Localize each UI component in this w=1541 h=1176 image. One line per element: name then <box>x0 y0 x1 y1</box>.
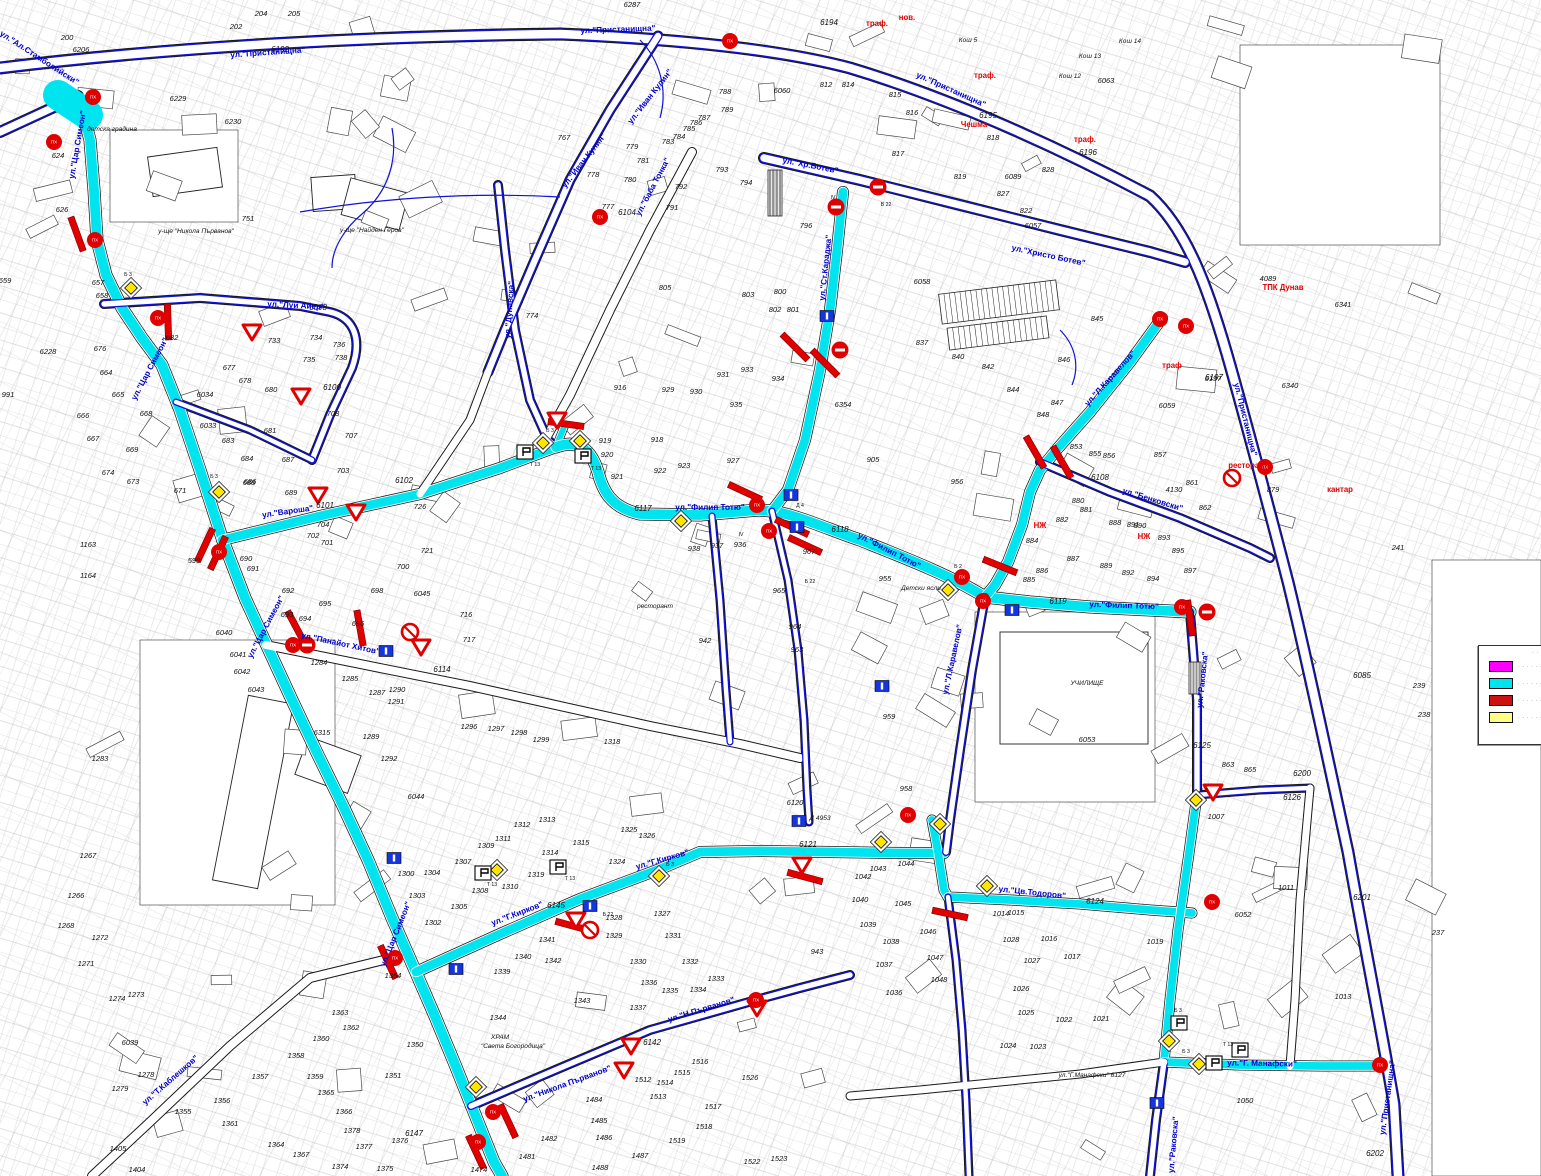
hydrant-icon: ПХ <box>85 89 101 105</box>
hydrant-code: ПХ <box>766 529 772 534</box>
sign-small-label: Б 22 <box>603 912 614 918</box>
parcel-number-label: 1028 <box>1003 935 1021 944</box>
parcel-number-label: 659 <box>0 276 12 285</box>
info-sign-icon <box>583 901 597 912</box>
parcel-number-label: 707 <box>345 431 358 440</box>
parcel-number-label: 884 <box>1026 536 1039 545</box>
parcel-number-label: 1333 <box>708 974 726 983</box>
open-area <box>1240 45 1440 245</box>
parcel-number-label: 815 <box>889 90 902 99</box>
building <box>327 107 353 135</box>
poi-label-black: Кош 5 <box>959 37 978 44</box>
poi-label-black: "Света Богородица" <box>481 1042 546 1050</box>
parcel-number-label: 726 <box>414 502 427 511</box>
hydrant-code: ПХ <box>216 550 222 555</box>
poi-label-black: ресторант <box>636 603 674 610</box>
poi-label-black: у-ще "Никола Първанов" <box>157 228 234 235</box>
parcel-number-label: 1267 <box>80 851 98 860</box>
parcel-number-label: 1356 <box>214 1096 232 1105</box>
hydrant-icon: ПХ <box>761 523 777 539</box>
parcel-number-label: 721 <box>421 546 434 555</box>
parcel-number-label: 1329 <box>606 931 624 940</box>
sign-small-label: Б 3 <box>124 272 132 278</box>
parcel-number-label: 816 <box>906 108 919 117</box>
parcel-number-label: 812 <box>820 80 833 89</box>
hydrant-icon: ПХ <box>722 33 738 49</box>
street-code-label: 6124 <box>1086 897 1104 906</box>
hydrant-code: ПХ <box>290 643 296 648</box>
parcel-number-label: 927 <box>727 456 740 465</box>
poi-label-red: кантар <box>1327 485 1353 494</box>
parcel-number-label: 865 <box>1244 765 1257 774</box>
parcel-number-label: 1026 <box>1013 984 1031 993</box>
parcel-number-label: 1357 <box>252 1072 270 1081</box>
poi-label-black: Кош 12 <box>1059 73 1082 80</box>
parcel-number-label: 1040 <box>852 895 870 904</box>
hydrant-code: ПХ <box>392 956 398 961</box>
parcel-number-label: 667 <box>87 434 100 443</box>
parcel-number-label: 1366 <box>336 1107 354 1116</box>
info-sign-icon <box>1005 605 1019 616</box>
building <box>211 975 232 985</box>
street-code-label: 6102 <box>395 476 413 485</box>
parcel-number-label: 669 <box>126 445 139 454</box>
parcel-number-label: 658 <box>96 291 109 300</box>
parcel-number-label: 1355 <box>175 1107 193 1116</box>
parcel-number-label: 1017 <box>1064 952 1082 961</box>
parcel-number-label: 1363 <box>332 1008 350 1017</box>
hydrant-code: ПХ <box>754 503 760 508</box>
parcel-number-label: 6340 <box>1282 381 1300 390</box>
parcel-number-label: 1351 <box>385 1071 402 1080</box>
sign-small-label: Б 3 <box>1174 1008 1182 1014</box>
street-code-label: 6196 <box>1079 148 1097 157</box>
parcel-number-label: 1519 <box>669 1136 687 1145</box>
parcel-number-label: 842 <box>982 362 995 371</box>
legend-label: · · · · · · · <box>1518 715 1541 720</box>
parcel-number-label: 1050 <box>1237 1096 1255 1105</box>
info-glyph <box>1156 1100 1158 1107</box>
parcel-number-label: 893 <box>1158 533 1171 542</box>
parcel-number-label: 690 <box>240 554 253 563</box>
hydrant-icon: ПХ <box>1178 318 1194 334</box>
parcel-number-label: 693 <box>281 610 294 619</box>
parcel-number-label: 892 <box>1122 568 1135 577</box>
parcel-number-label: 751 <box>242 214 255 223</box>
parcel-number-label: 931 <box>717 370 730 379</box>
street-code-label: 6142 <box>643 1038 661 1047</box>
parcel-number-label: 1319 <box>528 870 546 879</box>
sign-small-label: Т 13 <box>487 882 497 888</box>
info-sign-icon <box>387 853 401 864</box>
parcel-number-label: 1022 <box>1056 1015 1074 1024</box>
poi-label-red: ресторант <box>1228 461 1268 470</box>
poi-label-red: НЖ <box>1138 532 1152 541</box>
hydrant-icon: ПХ <box>900 807 916 823</box>
parcel-number-label: 681 <box>264 426 277 435</box>
poi-label-black: ХРАМ <box>490 1034 510 1041</box>
parcel-number-label: 827 <box>997 189 1010 198</box>
parcel-number-label: 1404 <box>129 1165 146 1174</box>
parcel-number-label: 1334 <box>690 985 707 994</box>
sign-small-label: Б 2 <box>954 564 962 570</box>
parcel-number-label: 847 <box>1051 398 1064 407</box>
street-code-label: 6108 <box>1091 473 1109 482</box>
parcel-number-label: 1278 <box>138 1070 156 1079</box>
parcel-number-label: 1361 <box>222 1119 239 1128</box>
parcel-number-label: 687 <box>282 455 295 464</box>
info-sign-icon <box>790 522 804 533</box>
parcel-number-label: 6053 <box>1079 735 1097 744</box>
building <box>336 1068 362 1092</box>
parcel-number-label: 905 <box>867 455 880 464</box>
parcel-number-label: 696 <box>352 619 365 628</box>
parcel-number-label: 888 <box>1109 518 1122 527</box>
poi-label-red: ТПК Дунав <box>1262 283 1303 292</box>
parcel-number-label: 837 <box>916 338 929 347</box>
parcel-number-label: 1297 <box>488 724 506 733</box>
parcel-number-label: 886 <box>1036 566 1049 575</box>
hydrant-icon: ПХ <box>1152 311 1168 327</box>
parcel-number-label: 934 <box>772 374 785 383</box>
parcel-number-label: 916 <box>614 383 627 392</box>
parcel-number-label: 929 <box>662 385 675 394</box>
parcel-number-label: 817 <box>892 149 905 158</box>
parcel-number-label: 1013 <box>1335 992 1353 1001</box>
parcel-number-label: 1019 <box>1147 937 1165 946</box>
parcel-number-label: 6206 <box>73 45 91 54</box>
parcel-number-label: 1330 <box>630 957 648 966</box>
building <box>1000 632 1148 744</box>
street-code-label: 6147 <box>405 1129 423 1138</box>
parcel-number-label: 626 <box>56 205 69 214</box>
hydrant-code: ПХ <box>597 215 603 220</box>
map-legend: · · · · · · · · · · · · · · · · · · · · … <box>1478 645 1541 745</box>
poi-label-red: траф. <box>1074 135 1096 144</box>
parcel-number-label: 200 <box>60 33 74 42</box>
legend-item-red: · · · · · · · <box>1489 695 1541 706</box>
parcel-number-label: 1163 <box>80 540 97 549</box>
street-code-label: 6114 <box>433 665 451 674</box>
sign-small-label: Д 4 <box>796 503 804 509</box>
hydrant-code: ПХ <box>905 813 911 818</box>
parcel-number-label: 1377 <box>356 1142 374 1151</box>
map-canvas[interactable]: ПХПХПХПХПХПХПХПХПХПХПХПХПХПХПХПХПХПХПХПХ… <box>0 0 1541 1176</box>
parcel-number-label: 845 <box>1091 314 1104 323</box>
legend-label: · · · · · · · <box>1518 698 1541 703</box>
parcel-number-label: 666 <box>77 411 90 420</box>
poi-label-black: УЧИЛИЩЕ <box>1069 680 1104 687</box>
sign-small-label: Б 22 <box>805 579 816 585</box>
parcel-number-label: 677 <box>223 363 236 372</box>
parcel-number-label: 6229 <box>170 94 188 103</box>
parcel-number-label: 717 <box>463 635 476 644</box>
legend-chip-red <box>1489 695 1513 706</box>
parcel-number-label: 1314 <box>542 848 559 857</box>
parcel-number-label: 1292 <box>381 754 399 763</box>
parcel-number-label: 1364 <box>268 1140 285 1149</box>
parcel-number-label: 683 <box>222 436 235 445</box>
sign-small-label: IV <box>739 532 744 538</box>
parcel-number-label: 668 <box>140 409 153 418</box>
parcel-number-label: 881 <box>1080 505 1093 514</box>
info-sign-icon <box>792 816 806 827</box>
street-code-label: 6195 <box>979 111 997 120</box>
parcel-number-label: 692 <box>282 586 295 595</box>
parcel-number-label: 691 <box>247 564 260 573</box>
sign-small-label: Б 3 <box>666 862 674 868</box>
parcel-number-label: 777 <box>602 202 615 211</box>
parcel-number-label: 1164 <box>80 571 96 580</box>
parcel-number-label: 689 <box>285 488 298 497</box>
parcel-number-label: 716 <box>460 610 473 619</box>
parcel-number-label: 846 <box>1058 355 1071 364</box>
parcel-number-label: 1274 <box>109 994 126 1003</box>
building <box>561 717 598 741</box>
poi-label-black: ул."Г.Манафски" 6127 <box>1058 1072 1126 1079</box>
parcel-number-label: 920 <box>601 450 614 459</box>
hydrant-code: ПХ <box>727 39 733 44</box>
parcel-number-label: 800 <box>774 287 787 296</box>
hydrant-code: ПХ <box>1157 317 1163 322</box>
info-sign-icon <box>449 964 463 975</box>
sign-small-label: Б 3 <box>546 428 554 434</box>
parcel-number-label: 1307 <box>455 857 473 866</box>
street-name-label: ул."Г. Манафски" <box>1227 1058 1297 1068</box>
parcel-number-label: 1027 <box>1024 956 1042 965</box>
hydrant-code: ПХ <box>959 575 965 580</box>
parcel-number-label: 733 <box>268 336 281 345</box>
parcel-number-label: 959 <box>883 712 896 721</box>
hydrant-code: ПХ <box>490 1110 496 1115</box>
parcel-number-label: 1279 <box>112 1084 130 1093</box>
street-code-label: 6119 <box>1049 597 1067 606</box>
parcel-number-label: 1336 <box>641 978 659 987</box>
parcel-number-label: 202 <box>229 22 243 31</box>
parcel-number-label: 956 <box>951 477 964 486</box>
parcel-number-label: 704 <box>317 520 330 529</box>
parcel-number-label: 943 <box>811 947 824 956</box>
parcel-number-label: 1283 <box>92 754 110 763</box>
parcel-number-label: 665 <box>112 390 125 399</box>
parcel-number-label: 6228 <box>40 347 58 356</box>
street-code-label: 6121 <box>799 840 817 849</box>
poi-label-black: детска градина <box>87 125 137 133</box>
sign-small-label: Т 13 <box>565 876 575 882</box>
poi-label-red: Чешма <box>961 120 988 129</box>
parcel-number-label: 1362 <box>343 1023 361 1032</box>
junction-sign-icon <box>475 866 491 880</box>
parcel-number-label: 1486 <box>596 1133 614 1142</box>
no-entry-bar <box>873 186 883 189</box>
parcel-number-label: 890 <box>1134 521 1147 530</box>
parcel-number-label: 936 <box>734 540 747 549</box>
parcel-number-label: 1304 <box>424 868 441 877</box>
info-glyph <box>881 683 883 690</box>
parcel-number-label: 882 <box>1056 515 1069 524</box>
parcel-number-label: 1375 <box>377 1164 395 1173</box>
parcel-number-label: 6060 <box>774 86 792 95</box>
parcel-number-label: 862 <box>1199 503 1212 512</box>
parcel-number-label: 780 <box>624 175 637 184</box>
parcel-number-label: 935 <box>730 400 743 409</box>
parcel-number-label: 1046 <box>920 927 938 936</box>
parcel-number-label: 861 <box>1186 478 1199 487</box>
no-entry-bar <box>835 349 845 352</box>
parcel-number-label: 1474 <box>471 1165 488 1174</box>
hydrant-icon: ПХ <box>211 544 227 560</box>
parcel-number-label: 702 <box>307 531 320 540</box>
parcel-number-label: 1481 <box>519 1152 536 1161</box>
legend-label: · · · · · · · <box>1518 681 1541 686</box>
parcel-number-label: 6043 <box>248 685 266 694</box>
sign-small-label: Т 13 <box>530 462 540 468</box>
parcel-number-label: 1266 <box>68 891 86 900</box>
parcel-number-label: 1326 <box>639 831 657 840</box>
hydrant-code: ПХ <box>1209 900 1215 905</box>
parcel-number-label: 6039 <box>122 1038 140 1047</box>
parcel-number-label: 1332 <box>682 957 700 966</box>
no-entry-sign-icon <box>832 342 849 359</box>
parcel-number-label: 1325 <box>621 825 639 834</box>
hydrant-code: ПХ <box>1377 1063 1383 1068</box>
street-code-label: 6200 <box>1293 769 1311 778</box>
parcel-number-label: 889 <box>1100 561 1113 570</box>
parcel-number-label: 4089 <box>1260 274 1278 283</box>
parcel-number-label: 1484 <box>586 1095 603 1104</box>
parcel-number-label: 1512 <box>635 1075 653 1084</box>
parcel-number-label: 1268 <box>58 921 76 930</box>
poi-label-red: траф. <box>866 19 888 28</box>
parcel-number-label: 793 <box>716 165 729 174</box>
parcel-number-label: 1285 <box>342 674 360 683</box>
poi-label-red: нов. <box>899 13 915 22</box>
hydrant-code: ПХ <box>92 238 98 243</box>
hydrant-icon: ПХ <box>1204 894 1220 910</box>
info-sign-icon <box>379 646 393 657</box>
parcel-number-label: 855 <box>1089 449 1102 458</box>
hydrant-icon: ПХ <box>46 134 62 150</box>
parcel-number-label: 6042 <box>234 667 252 676</box>
hydrant-code: ПХ <box>753 998 759 1003</box>
parcel-number-label: 930 <box>690 387 703 396</box>
parcel-number-label: 1309 <box>478 841 496 850</box>
parcel-number-label: 1048 <box>931 975 949 984</box>
parcel-number-label: 664 <box>100 368 113 377</box>
parcel-number-label: 1374 <box>332 1162 349 1171</box>
hydrant-code: ПХ <box>1183 324 1189 329</box>
parcel-number-label: 1311 <box>495 834 511 843</box>
parcel-number-label: 792 <box>675 182 688 191</box>
sign-small-label: IV <box>831 195 836 201</box>
parcel-number-label: 844 <box>1007 385 1020 394</box>
parcel-number-label: 1310 <box>502 882 520 891</box>
parcel-number-label: 237 <box>1431 928 1445 937</box>
parcel-number-label: 1016 <box>1041 934 1059 943</box>
parcel-number-label: 796 <box>800 221 813 230</box>
hydrant-code: ПХ <box>155 316 161 321</box>
parcel-number-label: 6034 <box>197 390 214 399</box>
parcel-number-label: 1039 <box>860 920 878 929</box>
info-sign-icon <box>875 681 889 692</box>
poi-label-black: Д 4953 <box>808 815 830 822</box>
parcel-number-label: 1315 <box>573 838 591 847</box>
parcel-number-label: 1303 <box>409 891 427 900</box>
parcel-number-label: 767 <box>558 133 571 142</box>
poi-label-black: Кош 14 <box>1119 38 1142 45</box>
parcel-number-label: 6354 <box>835 400 852 409</box>
parcel-number-label: 1284 <box>311 658 328 667</box>
parcel-number-label: 238 <box>1417 710 1431 719</box>
parcel-number-label: 204 <box>254 9 268 18</box>
legend-label: · · · · · · · · <box>1518 664 1541 669</box>
parcel-number-label: 938 <box>688 544 701 553</box>
no-entry-bar <box>831 206 841 209</box>
parcel-number-label: 6230 <box>225 117 243 126</box>
parcel-number-label: 708 <box>327 409 340 418</box>
parcel-number-label: 671 <box>174 486 187 495</box>
sign-small-label: Б 3 <box>1200 788 1208 794</box>
info-sign-icon <box>1150 1098 1164 1109</box>
parcel-number-label: 1518 <box>696 1122 714 1131</box>
street-code-label: 6145 <box>547 901 565 910</box>
parcel-number-label: 1522 <box>744 1157 762 1166</box>
parcel-number-label: 205 <box>287 9 301 18</box>
parcel-number-label: 698 <box>371 586 384 595</box>
parcel-number-label: 1299 <box>533 735 551 744</box>
hydrant-icon: ПХ <box>592 209 608 225</box>
parcel-number-label: 688 <box>243 478 256 487</box>
parcel-number-label: 6044 <box>408 792 425 801</box>
parcel-number-label: 1359 <box>307 1072 325 1081</box>
info-sign-icon <box>784 490 798 501</box>
parcel-number-label: 241 <box>1391 543 1405 552</box>
parcel-number-label: 1378 <box>344 1126 362 1135</box>
parcel-number-label: 1340 <box>515 952 533 961</box>
hydrant-icon: ПХ <box>749 497 765 513</box>
info-glyph <box>798 818 800 825</box>
parcel-number-label: 965 <box>773 586 786 595</box>
parcel-number-label: 1302 <box>425 918 443 927</box>
parcel-number-label: 991 <box>2 390 15 399</box>
parcel-number-label: 958 <box>900 784 913 793</box>
parcel-number-label: 1350 <box>407 1040 425 1049</box>
parcel-number-label: 624 <box>52 151 65 160</box>
parcel-number-label: 1327 <box>654 909 672 918</box>
parcel-number-label: 1036 <box>886 988 904 997</box>
parcel-number-label: 736 <box>333 340 346 349</box>
no-entry-bar <box>302 644 312 647</box>
parcel-number-label: 6341 <box>1335 300 1352 309</box>
parcel-number-label: 814 <box>842 80 855 89</box>
parcel-number-label: 964 <box>789 622 802 631</box>
parcel-number-label: 6059 <box>1159 401 1177 410</box>
parcel-number-label: 1037 <box>876 960 894 969</box>
parcel-number-label: 1271 <box>78 959 95 968</box>
parcel-number-label: 1042 <box>855 872 873 881</box>
parcel-number-label: 1482 <box>541 1134 559 1143</box>
legend-chip-yellow <box>1489 712 1513 723</box>
parcel-number-label: 918 <box>651 435 664 444</box>
parcel-number-label: 1300 <box>398 869 416 878</box>
parcel-number-label: 894 <box>1147 574 1160 583</box>
parcel-number-label: 784 <box>673 132 686 141</box>
street-code-label: 6125 <box>1193 741 1211 750</box>
legend-chip-cyan <box>1489 678 1513 689</box>
parcel-number-label: 6040 <box>216 628 234 637</box>
no-entry-bar <box>1202 611 1212 614</box>
parcel-number-label: 1487 <box>632 1151 650 1160</box>
